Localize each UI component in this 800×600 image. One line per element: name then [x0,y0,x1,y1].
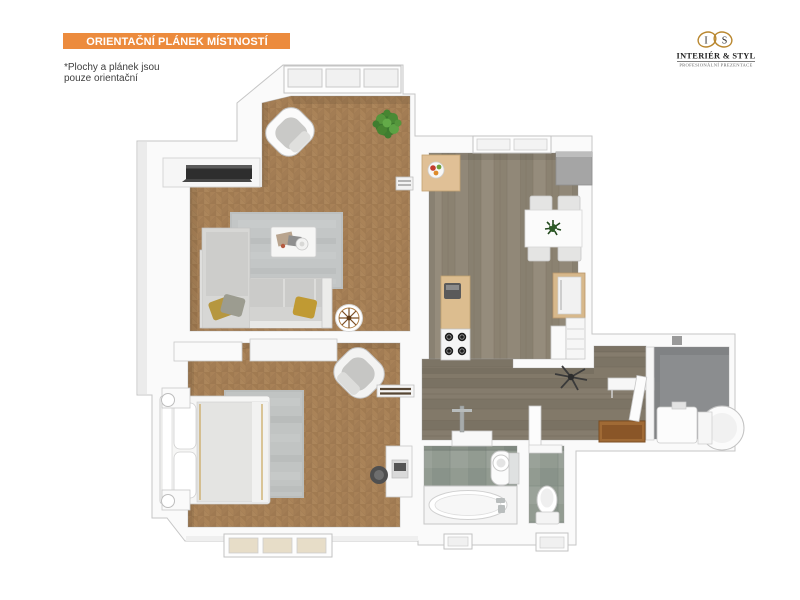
svg-text:ORIENTAČNÍ PLÁNEK MÍSTNOSTÍ: ORIENTAČNÍ PLÁNEK MÍSTNOSTÍ [86,35,268,48]
svg-text:*Plochy a plánek jsou: *Plochy a plánek jsou [64,62,160,73]
svg-text:INTERIÉR & STYL: INTERIÉR & STYL [677,51,756,61]
svg-text:S: S [722,36,728,47]
svg-text:pouze orientační: pouze orientační [64,73,138,84]
svg-text:I: I [704,36,707,47]
svg-text:PROFESIONÁLNÍ PREZENTACE: PROFESIONÁLNÍ PREZENTACE [679,63,752,68]
